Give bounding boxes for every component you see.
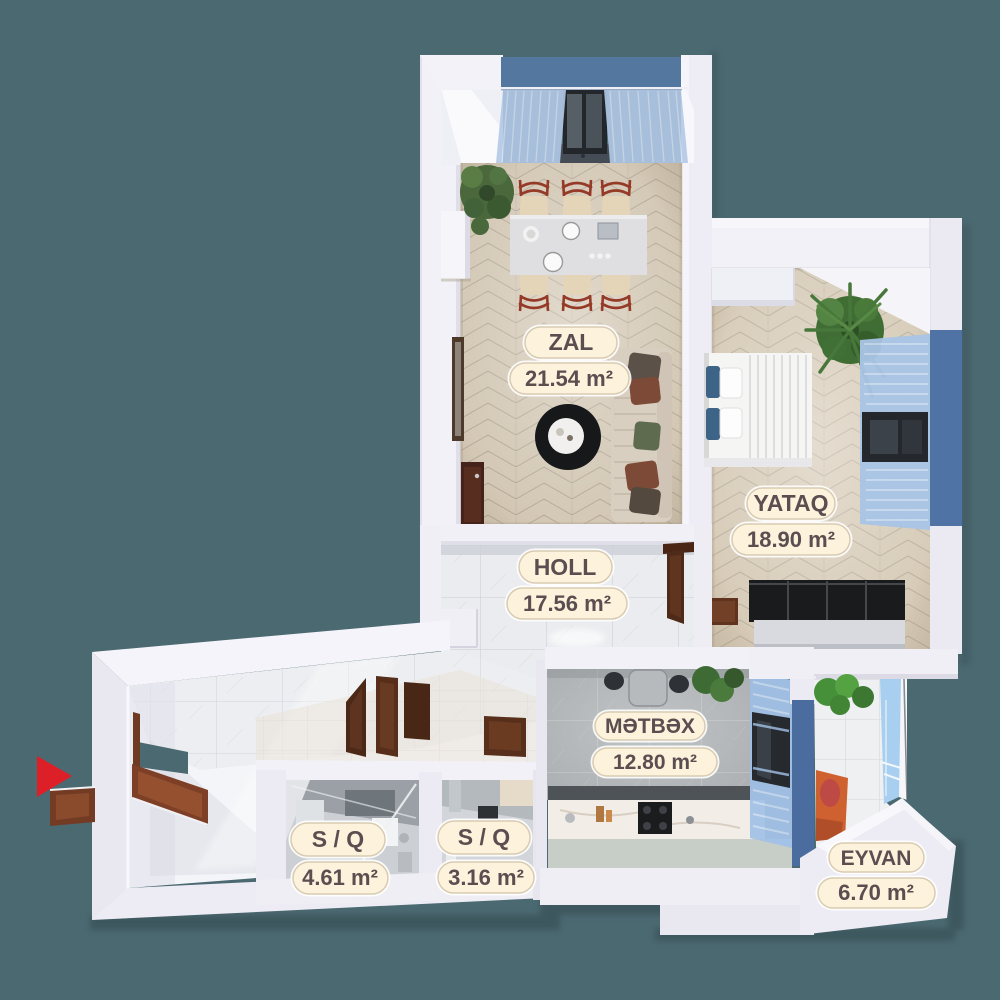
svg-text:YATAQ: YATAQ <box>754 490 829 516</box>
svg-text:ZAL: ZAL <box>549 329 594 355</box>
svg-text:HOLL: HOLL <box>534 554 597 580</box>
svg-text:EYVAN: EYVAN <box>841 847 912 870</box>
svg-text:S / Q: S / Q <box>458 824 510 850</box>
svg-text:MƏTBƏX: MƏTBƏX <box>605 715 695 738</box>
svg-text:17.56 m²: 17.56 m² <box>523 591 611 616</box>
svg-text:3.16 m²: 3.16 m² <box>448 865 524 890</box>
svg-text:12.80 m²: 12.80 m² <box>613 751 697 774</box>
svg-text:4.61 m²: 4.61 m² <box>302 865 378 890</box>
svg-text:6.70 m²: 6.70 m² <box>838 880 914 905</box>
svg-text:S / Q: S / Q <box>312 826 364 852</box>
svg-text:18.90 m²: 18.90 m² <box>747 527 835 552</box>
svg-text:21.54 m²: 21.54 m² <box>525 366 613 391</box>
